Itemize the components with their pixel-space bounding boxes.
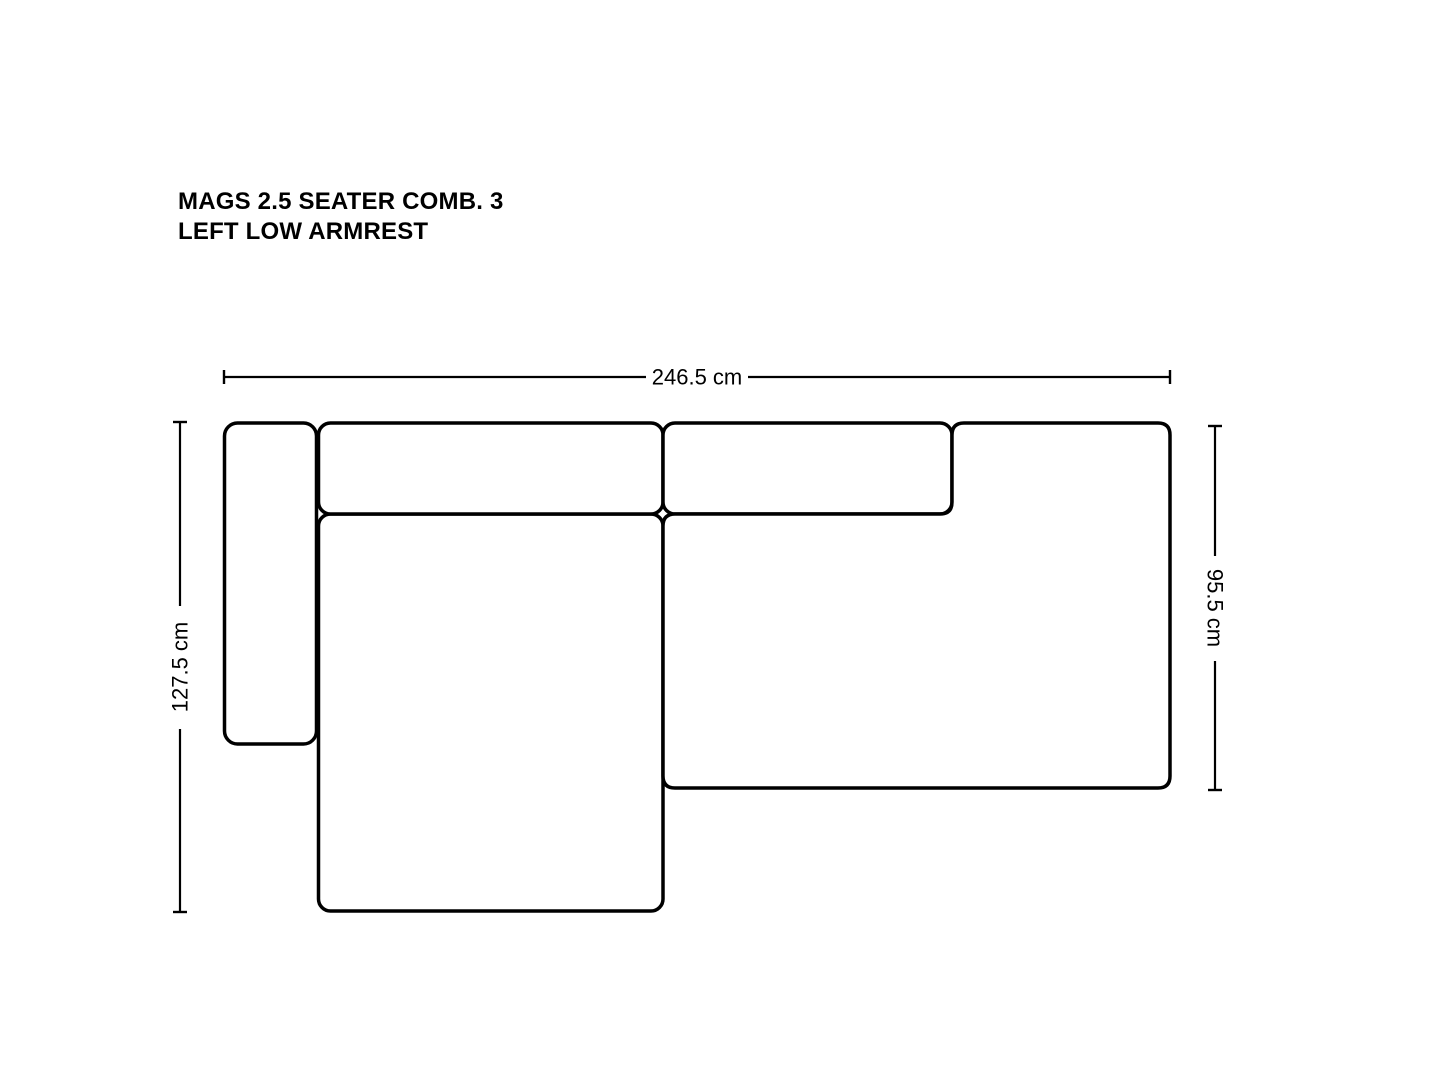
dimension-overall-width: 246.5 cm — [224, 365, 1170, 390]
seater-backrest-cushion-outline — [663, 423, 952, 514]
dimension-overall-depth: 127.5 cm — [168, 422, 193, 912]
product-title: MAGS 2.5 SEATER COMB. 3 LEFT LOW ARMREST — [178, 188, 504, 245]
chaise-backrest-cushion-outline — [319, 423, 664, 514]
sofa-outline — [225, 423, 1171, 911]
dimension-seat-depth: 95.5 cm — [1203, 426, 1228, 790]
chaise-seat-outline — [319, 514, 664, 911]
width-dim-label: 246.5 cm — [652, 365, 743, 390]
product-title-line2: LEFT LOW ARMREST — [178, 218, 428, 245]
seat-depth-dim-label: 95.5 cm — [1203, 569, 1228, 647]
product-title-line1: MAGS 2.5 SEATER COMB. 3 — [178, 188, 504, 215]
left-low-armrest-outline — [225, 423, 317, 744]
depth-dim-label: 127.5 cm — [168, 622, 193, 713]
sofa-dimension-diagram: MAGS 2.5 SEATER COMB. 3 LEFT LOW ARMREST… — [0, 0, 1445, 1087]
